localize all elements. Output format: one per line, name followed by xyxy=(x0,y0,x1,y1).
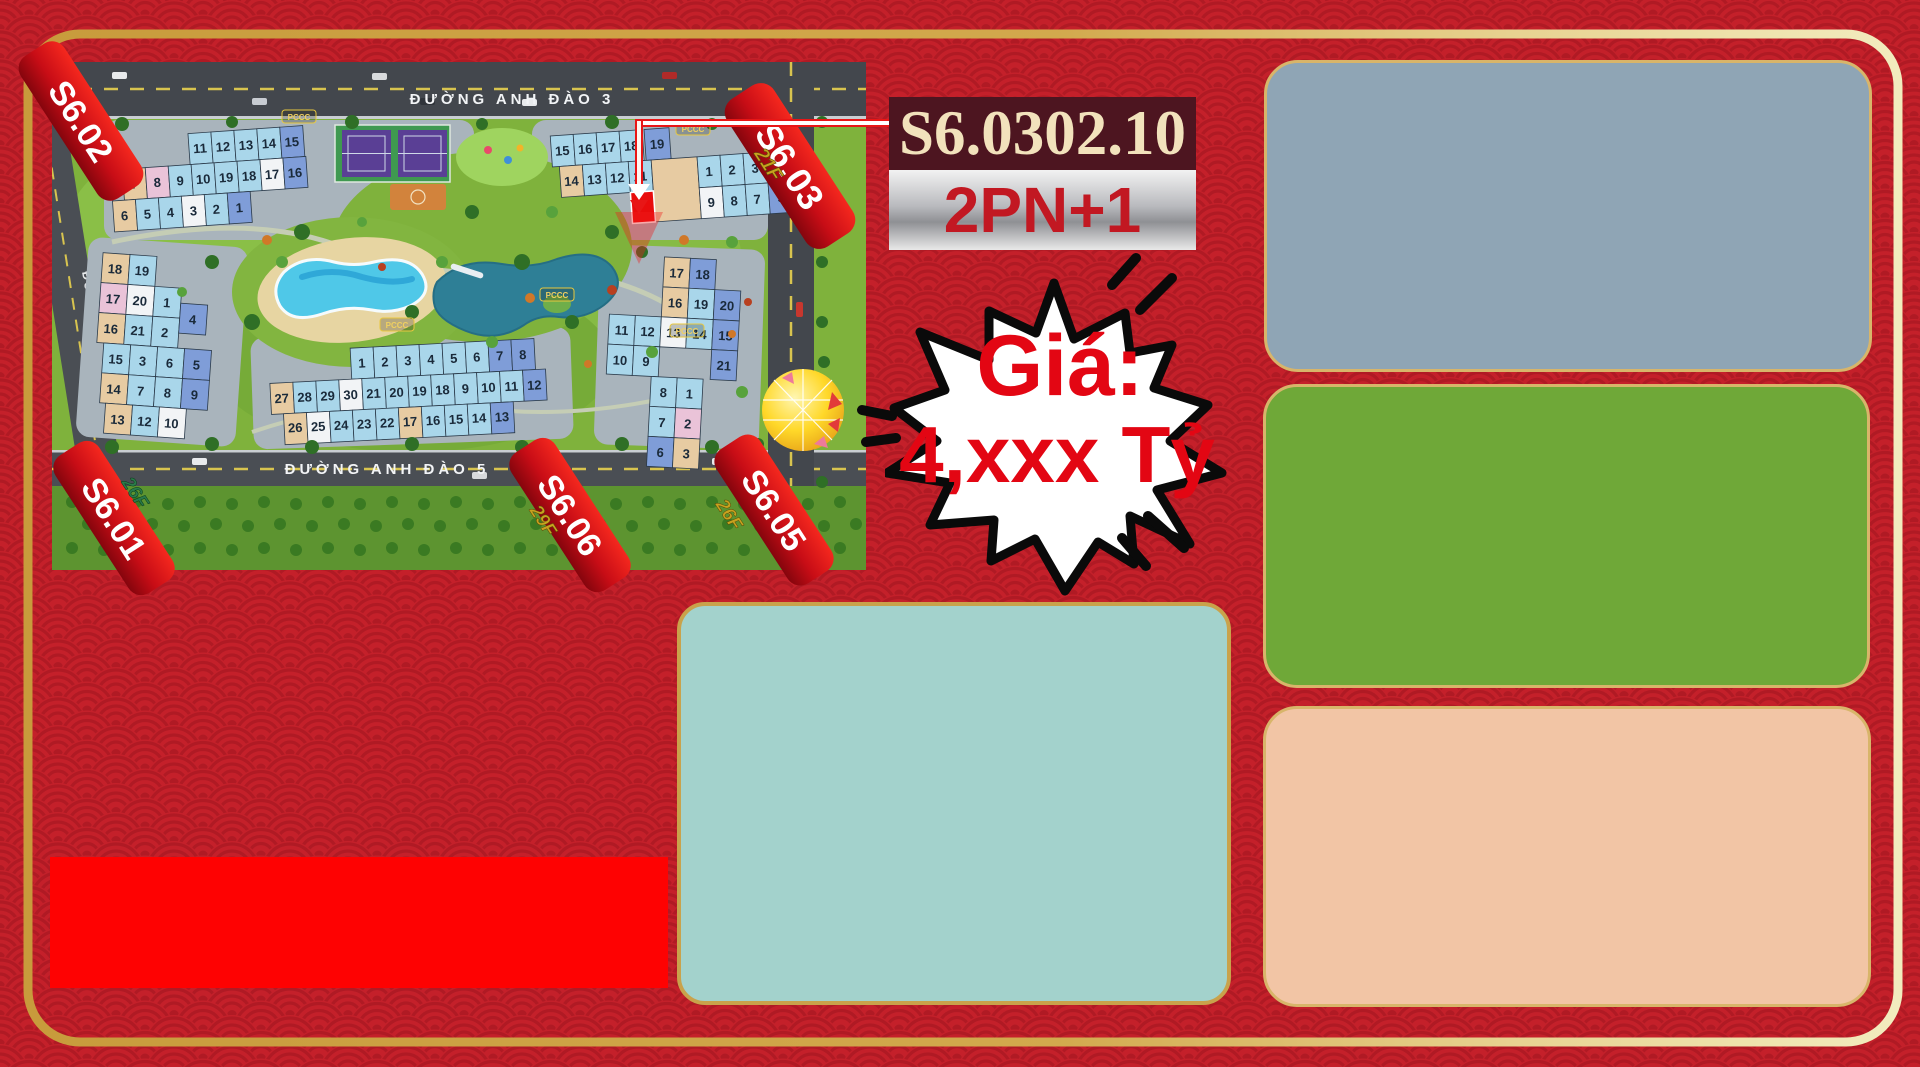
svg-text:15: 15 xyxy=(448,411,463,427)
svg-text:3: 3 xyxy=(404,353,412,368)
svg-text:9: 9 xyxy=(176,173,184,188)
svg-text:7: 7 xyxy=(130,176,138,191)
svg-text:14: 14 xyxy=(106,381,122,397)
svg-text:8: 8 xyxy=(163,385,171,400)
svg-text:8: 8 xyxy=(519,347,527,362)
svg-text:11: 11 xyxy=(614,322,629,338)
svg-text:1: 1 xyxy=(685,386,693,401)
svg-text:3: 3 xyxy=(138,353,146,368)
svg-text:2: 2 xyxy=(381,354,389,369)
svg-text:20: 20 xyxy=(132,293,147,309)
svg-text:14: 14 xyxy=(471,410,487,426)
svg-text:1: 1 xyxy=(235,200,243,215)
svg-text:11: 11 xyxy=(193,140,208,156)
svg-text:20: 20 xyxy=(719,298,734,314)
svg-text:28: 28 xyxy=(297,389,312,405)
svg-text:9: 9 xyxy=(190,387,198,402)
svg-text:19: 19 xyxy=(649,136,664,152)
svg-text:6: 6 xyxy=(165,355,173,370)
svg-text:15: 15 xyxy=(108,351,123,367)
svg-text:16: 16 xyxy=(287,165,302,181)
svg-text:1: 1 xyxy=(358,355,366,370)
svg-text:21: 21 xyxy=(716,358,731,374)
svg-text:5: 5 xyxy=(777,190,785,205)
svg-text:22: 22 xyxy=(379,415,394,431)
svg-text:30: 30 xyxy=(343,387,358,403)
svg-text:2: 2 xyxy=(684,416,692,431)
svg-text:17: 17 xyxy=(600,140,615,156)
svg-text:21: 21 xyxy=(130,323,145,339)
svg-text:19: 19 xyxy=(693,297,708,313)
svg-text:6: 6 xyxy=(656,445,664,460)
svg-text:10: 10 xyxy=(195,171,210,187)
svg-text:6: 6 xyxy=(473,349,481,364)
svg-text:21: 21 xyxy=(366,386,381,402)
svg-text:19: 19 xyxy=(218,170,233,186)
svg-text:14: 14 xyxy=(564,173,580,189)
svg-text:5: 5 xyxy=(450,351,458,366)
svg-text:15: 15 xyxy=(284,134,299,150)
svg-text:15: 15 xyxy=(555,143,570,159)
svg-text:8: 8 xyxy=(659,385,667,400)
svg-text:PCCC: PCCC xyxy=(386,321,409,330)
svg-text:2: 2 xyxy=(728,162,736,177)
svg-text:10: 10 xyxy=(612,352,627,368)
svg-text:7: 7 xyxy=(753,191,761,206)
svg-text:18: 18 xyxy=(435,382,450,398)
svg-text:ĐƯỜNG ANH ĐÀO 3: ĐƯỜNG ANH ĐÀO 3 xyxy=(410,90,615,108)
svg-text:16: 16 xyxy=(578,141,593,157)
svg-text:23: 23 xyxy=(357,416,372,432)
svg-text:12: 12 xyxy=(527,377,542,393)
svg-text:6: 6 xyxy=(120,208,128,223)
svg-text:5: 5 xyxy=(192,357,200,372)
svg-text:5: 5 xyxy=(143,206,151,221)
svg-text:12: 12 xyxy=(640,324,655,340)
svg-text:PCCC: PCCC xyxy=(676,327,699,336)
svg-text:19: 19 xyxy=(134,263,149,279)
svg-text:9: 9 xyxy=(461,381,469,396)
svg-text:8: 8 xyxy=(153,175,161,190)
svg-text:18: 18 xyxy=(107,261,122,277)
svg-text:27: 27 xyxy=(274,390,289,406)
svg-text:13: 13 xyxy=(238,137,253,153)
svg-text:25: 25 xyxy=(311,419,326,435)
svg-text:12: 12 xyxy=(215,139,230,155)
svg-text:2: 2 xyxy=(161,325,169,340)
svg-text:2: 2 xyxy=(212,202,220,217)
svg-text:24: 24 xyxy=(334,417,350,433)
svg-text:7: 7 xyxy=(496,348,504,363)
svg-text:16: 16 xyxy=(667,295,682,311)
svg-text:18: 18 xyxy=(695,267,710,283)
svg-text:3: 3 xyxy=(751,161,759,176)
svg-text:8: 8 xyxy=(730,193,738,208)
svg-text:1: 1 xyxy=(705,164,713,179)
svg-text:3: 3 xyxy=(189,203,197,218)
svg-text:9: 9 xyxy=(707,195,715,210)
svg-text:PCCC: PCCC xyxy=(682,125,705,134)
svg-text:26: 26 xyxy=(288,420,303,436)
svg-text:18: 18 xyxy=(623,138,638,154)
svg-text:ĐƯỜNG ANH ĐÀO 5: ĐƯỜNG ANH ĐÀO 5 xyxy=(285,460,490,478)
svg-text:18: 18 xyxy=(241,168,256,184)
svg-text:29: 29 xyxy=(320,388,335,404)
svg-text:17: 17 xyxy=(402,414,417,430)
svg-text:13: 13 xyxy=(587,172,602,188)
svg-text:13: 13 xyxy=(494,409,509,425)
svg-text:12: 12 xyxy=(610,170,625,186)
svg-text:17: 17 xyxy=(264,166,279,182)
svg-text:20: 20 xyxy=(389,384,404,400)
svg-text:19: 19 xyxy=(412,383,427,399)
svg-text:16: 16 xyxy=(425,413,440,429)
svg-text:12: 12 xyxy=(137,413,152,429)
svg-text:17: 17 xyxy=(669,265,684,281)
svg-text:10: 10 xyxy=(481,380,496,396)
svg-text:PCCC: PCCC xyxy=(546,291,569,300)
svg-text:10: 10 xyxy=(164,415,179,431)
svg-text:14: 14 xyxy=(261,135,277,151)
svg-text:16: 16 xyxy=(103,321,118,337)
svg-text:3: 3 xyxy=(682,446,690,461)
svg-text:11: 11 xyxy=(633,168,648,184)
svg-text:13: 13 xyxy=(110,412,125,428)
svg-text:17: 17 xyxy=(105,291,120,307)
svg-text:1: 1 xyxy=(163,295,171,310)
svg-text:PCCC: PCCC xyxy=(288,113,311,122)
svg-text:7: 7 xyxy=(136,383,144,398)
svg-text:7: 7 xyxy=(658,415,666,430)
svg-text:11: 11 xyxy=(504,378,519,394)
